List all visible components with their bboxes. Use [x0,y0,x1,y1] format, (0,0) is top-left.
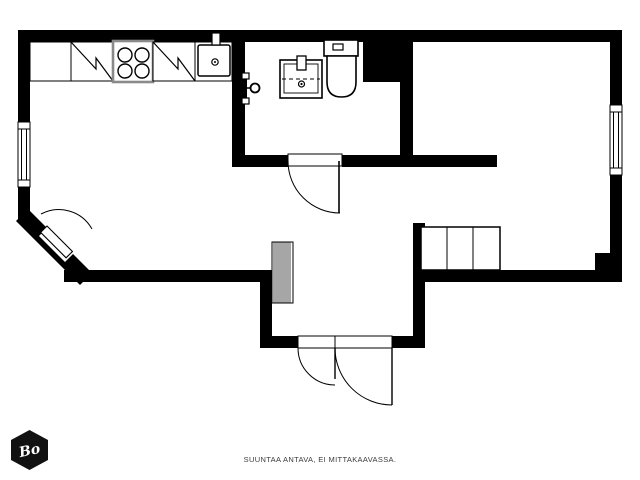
wall-bathroom-right [400,42,413,155]
brand-logo: Bo [11,430,48,470]
toilet-icon [324,40,358,97]
floor-plan-page: Bo SUUNTAA ANTAVA, EI MITTAKAAVASSA. [0,0,640,480]
appliance-symbol-left [71,42,113,81]
wall-entry-left [260,336,298,348]
wall-right-lower [610,175,622,282]
wall-bathroom-bottom-right [342,155,497,167]
washbasin-icon [280,56,322,98]
wall-bottom-right-room [413,270,622,282]
wall-bottom-left-room [64,270,272,282]
wall-top [18,30,622,42]
service-shaft [363,42,403,82]
floor-plan-drawing: Bo [0,0,640,480]
entry-double-door [298,336,392,405]
closet-3-sections [421,227,500,270]
stove-icon [113,41,153,82]
window-left [18,122,30,187]
wall-bathroom-bottom-left [232,155,288,167]
footer-note: SUUNTAA ANTAVA, EI MITTAKAAVASSA. [0,455,640,464]
window-right [610,105,622,175]
wall-left-upper [18,42,30,122]
bathroom-door [288,154,342,213]
wall-right-upper [610,42,622,105]
hatched-wardrobe [272,242,293,303]
appliance-symbol-right [153,42,195,81]
bathroom-fixtures [242,40,358,104]
